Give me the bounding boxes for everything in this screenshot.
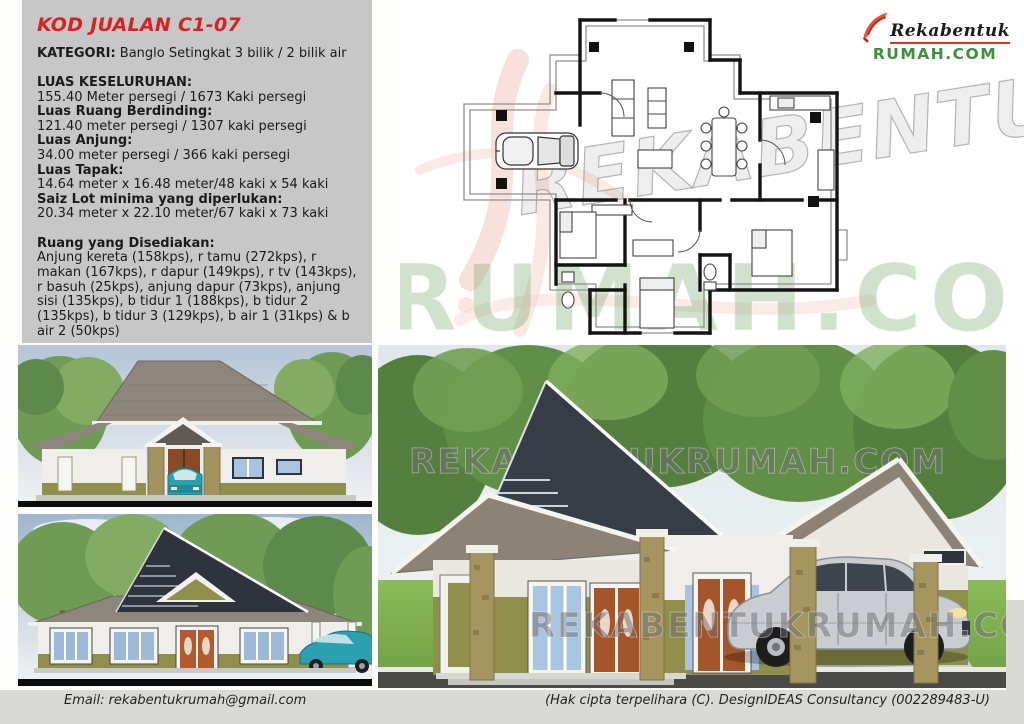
front-elevation-render <box>18 345 372 507</box>
brand-logo: Rekabentuk RUMAH.COM <box>860 8 1010 64</box>
spec-value-porch-area: 34.00 meter persegi / 366 kaki persegi <box>37 149 357 164</box>
perspective-render: REKABENTUKRUMAH.COM <box>378 345 1006 688</box>
render-watermark-bottom: REKABENTUKRUMAH.COM <box>529 606 1006 646</box>
stone-pillar-mid <box>636 529 668 680</box>
sale-code-title: KOD JUALAN C1-07 <box>37 14 357 36</box>
side-elevation-render <box>18 514 372 686</box>
right-wing-olive-band <box>220 483 346 497</box>
rooms-provided-label: Ruang yang Disediakan: <box>37 236 357 251</box>
plan-car-topview <box>496 133 578 169</box>
spec-label-site-size: Luas Tapak: <box>37 164 357 179</box>
rooms-provided-text: Anjung kereta (158kps), r tamu (272kps),… <box>37 251 357 340</box>
right-margin <box>1006 600 1024 690</box>
floor-plan-area: RUMAH.COM REKABENTUK <box>400 0 1024 343</box>
side-elevation-drawing <box>18 514 372 679</box>
logo-brand-name: Rekabentuk <box>890 21 1010 44</box>
spec-label-min-lot: Saiz Lot minima yang diperlukan: <box>37 193 357 208</box>
car-front-view <box>168 468 202 499</box>
spec-value-site-size: 14.64 meter x 16.48 meter/48 kaki x 54 k… <box>37 178 357 193</box>
spec-label-total-area: LUAS KESELURUHAN: <box>37 76 357 91</box>
logo-roof-icon <box>860 8 890 44</box>
perspective-drawing: REKABENTUKRUMAH.COM <box>378 345 1006 688</box>
side-plinth <box>34 668 356 673</box>
footer-email: Email: rekabentukrumah@gmail.com <box>64 693 306 708</box>
info-panel: KOD JUALAN C1-07 KATEGORI: Banglo Seting… <box>22 0 372 343</box>
side-entry-door <box>176 626 218 670</box>
spec-value-total-area: 155.40 Meter persegi / 1673 Kaki persegi <box>37 91 357 106</box>
stone-pillar-left <box>466 545 498 680</box>
footer-copyright: (Hak cipta terpelihara (C). DesignIDEAS … <box>545 693 990 708</box>
category-line: KATEGORI: Banglo Setingkat 3 bilik / 2 b… <box>37 46 357 61</box>
category-value: Banglo Setingkat 3 bilik / 2 bilik air <box>116 46 347 61</box>
spec-value-min-lot: 20.34 meter x 22.10 meter/67 kaki x 73 k… <box>37 207 357 222</box>
spec-label-porch-area: Luas Anjung: <box>37 134 357 149</box>
plan-watermark-domain: RUMAH.COM <box>400 245 1024 343</box>
plinth <box>36 495 356 501</box>
spec-label-walled-area: Luas Ruang Berdinding: <box>37 105 357 120</box>
logo-domain-name: RUMAH.COM <box>860 45 1010 63</box>
spec-value-walled-area: 121.40 meter persegi / 1307 kaki persegi <box>37 120 357 135</box>
plan-watermark-script: REKABENTUK <box>509 49 1024 234</box>
front-elevation-drawing <box>18 345 372 501</box>
render-watermark-top: REKABENTUKRUMAH.COM <box>409 442 947 482</box>
category-label: KATEGORI: <box>37 46 116 61</box>
